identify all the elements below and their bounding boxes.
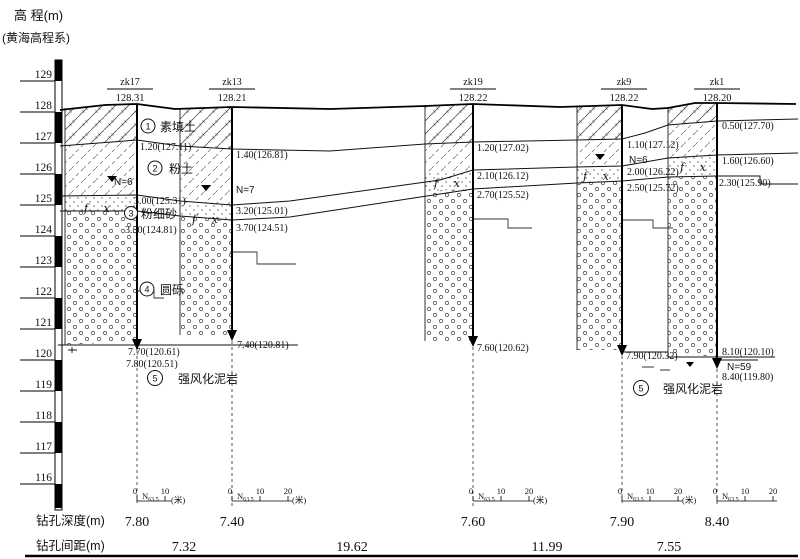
mark-label: 1.60(126.60) bbox=[722, 156, 774, 167]
scale-bar-zk17: 0 10 N63.5 (米) bbox=[133, 486, 185, 505]
scale-unit: (米) bbox=[682, 495, 696, 505]
layer-number: 4 bbox=[144, 285, 149, 295]
footer: 钻孔深度(m) 7.80 7.40 7.60 7.90 8.40 钻孔间距(m)… bbox=[25, 513, 798, 556]
mark-label: 1.40(126.81) bbox=[236, 150, 288, 161]
elevation-ruler: 129 128 127 126 125 124 123 122 121 120 … bbox=[20, 60, 62, 510]
layer5-label-left: 5 强风化泥岩 bbox=[148, 371, 239, 387]
scale-unit: (米) bbox=[533, 495, 547, 505]
mark-label: 3.00(125.31) bbox=[134, 196, 186, 207]
mark-label: 8.40(119.80) bbox=[722, 372, 773, 383]
scale-tick-20: 20 bbox=[525, 486, 534, 496]
layer-name: 粉细砂 bbox=[141, 207, 177, 221]
fx-symbol: f x bbox=[679, 161, 712, 174]
svg-text:116: 116 bbox=[35, 472, 52, 484]
svg-text:120: 120 bbox=[35, 348, 53, 360]
mark-label: 7.40(120.81) bbox=[237, 340, 289, 351]
scale-tick-10: 10 bbox=[497, 486, 506, 496]
spacing-value: 11.99 bbox=[532, 540, 563, 555]
svg-text:124: 124 bbox=[35, 224, 53, 236]
sample-step-zk13 bbox=[230, 252, 296, 264]
zk17-layer1-fill bbox=[65, 104, 137, 146]
mark-label: 7.80(120.51) bbox=[126, 359, 178, 370]
scale-tick-10: 10 bbox=[646, 486, 655, 496]
svg-text:118: 118 bbox=[35, 410, 52, 422]
layer-name: 强风化泥岩 bbox=[178, 371, 238, 386]
layer-number: 5 bbox=[152, 374, 157, 384]
layer-number: 1 bbox=[145, 122, 150, 132]
scale-tick-0: 0 bbox=[618, 486, 622, 496]
scale-bar-zk19: 0 10 20 N63.5 (米) bbox=[469, 486, 547, 505]
borehole-name: zk13 bbox=[222, 77, 241, 88]
borehole-name: zk17 bbox=[120, 77, 139, 88]
borehole-top-elevation: 128.21 bbox=[218, 93, 247, 104]
mark-label: 1.20(127.02) bbox=[477, 143, 529, 154]
borehole-bottom-arrow bbox=[712, 358, 722, 369]
fx-symbol: f x bbox=[83, 202, 116, 215]
borehole-name: zk19 bbox=[463, 77, 482, 88]
borehole-name: zk1 bbox=[710, 77, 724, 88]
spt-value: N=59 bbox=[727, 362, 752, 373]
spt-value: N=7 bbox=[236, 185, 255, 196]
scale-bar-zk13: 0 10 20 N63.5 (米) bbox=[228, 486, 306, 505]
fx-symbol: f x bbox=[191, 213, 224, 226]
layer2-label: 2 粉土 bbox=[148, 161, 193, 176]
sample-step-zk19 bbox=[473, 219, 532, 228]
svg-text:125: 125 bbox=[35, 193, 53, 205]
mark-label: 8.10(120.10) bbox=[722, 347, 774, 358]
geological-cross-section: 高 程(m) (黄海高程系) 129 128 127 126 125 124 1… bbox=[0, 0, 800, 559]
scale-unit: (米) bbox=[292, 495, 306, 505]
cross-section-drawing: 高 程(m) (黄海高程系) 129 128 127 126 125 124 1… bbox=[0, 0, 800, 559]
layer5-label-right: 5 强风化泥岩 bbox=[634, 381, 724, 397]
axis-subtitle: (黄海高程系) bbox=[2, 30, 70, 45]
depth-value: 7.90 bbox=[610, 515, 635, 530]
zk19-layer4-fill bbox=[425, 189, 473, 341]
layer1-label: 1 素填土 bbox=[141, 119, 196, 134]
mark-label: 7.90(120.32) bbox=[626, 351, 678, 362]
layer-number: 2 bbox=[152, 164, 157, 174]
mark-label: 2.00(126.22) bbox=[627, 167, 679, 178]
svg-text:128: 128 bbox=[35, 100, 53, 112]
scale-bar-zk1: 0 10 20 N63.5 bbox=[713, 486, 777, 503]
svg-text:127: 127 bbox=[35, 131, 53, 143]
layer-name: 粉土 bbox=[169, 162, 193, 176]
spt-value: N=6 bbox=[114, 177, 133, 188]
weathered-rock-tick bbox=[68, 347, 77, 353]
mark-label: 3.20(125.01) bbox=[236, 206, 288, 217]
mark-label: 3.50(124.81) bbox=[125, 225, 177, 236]
spacing-value: 7.32 bbox=[172, 540, 197, 555]
mark-label: 3.70(124.51) bbox=[236, 223, 288, 234]
mark-label: 2.70(125.52) bbox=[477, 190, 529, 201]
scale-tick-20: 20 bbox=[769, 486, 778, 496]
spacing-value: 19.62 bbox=[336, 540, 368, 555]
svg-text:123: 123 bbox=[35, 255, 53, 267]
spacing-row-label: 钻孔间距(m) bbox=[36, 538, 105, 553]
sample-step-zk9 bbox=[622, 220, 673, 228]
scale-tick-10: 10 bbox=[741, 486, 750, 496]
zk13-layer4-fill bbox=[180, 216, 232, 335]
depth-value: 7.80 bbox=[125, 515, 150, 530]
fx-symbol: f x bbox=[433, 177, 466, 190]
depth-value: 7.60 bbox=[461, 515, 486, 530]
scale-unit: (米) bbox=[171, 495, 185, 505]
axis-title: 高 程(m) bbox=[14, 8, 63, 23]
svg-text:119: 119 bbox=[35, 379, 52, 391]
scale-tick-0: 0 bbox=[228, 486, 232, 496]
water-table-icon bbox=[686, 362, 694, 367]
borehole-name: zk9 bbox=[617, 77, 631, 88]
borehole-top-elevation: 128.22 bbox=[610, 93, 639, 104]
zk9-layer2-fill bbox=[577, 139, 622, 167]
mark-label: 1.20(127.11) bbox=[140, 142, 191, 153]
scale-tick-20: 20 bbox=[284, 486, 293, 496]
fx-symbol: f x bbox=[582, 170, 615, 183]
scale-tick-10: 10 bbox=[161, 486, 170, 496]
layer-name: 圆砾 bbox=[160, 283, 184, 297]
mark-label: 7.70(120.61) bbox=[128, 347, 180, 358]
borehole-top-elevation: 128.22 bbox=[459, 93, 488, 104]
mark-label: 2.10(126.12) bbox=[477, 171, 529, 182]
spt-value: N=6 bbox=[629, 155, 648, 166]
mark-label: 1.10(127.12) bbox=[627, 140, 679, 151]
scale-tick-0: 0 bbox=[713, 486, 717, 496]
mark-label: 2.30(125.90) bbox=[719, 178, 771, 189]
mark-label: 2.50(125.72) bbox=[627, 183, 679, 194]
zk19-layer1-fill bbox=[425, 104, 473, 144]
svg-text:129: 129 bbox=[35, 69, 53, 81]
scale-bar-zk9: 0 10 20 N63.5 (米) bbox=[618, 486, 696, 505]
svg-text:121: 121 bbox=[35, 317, 53, 329]
layer3-label: 3 粉细砂 bbox=[125, 207, 178, 222]
ruler-tick-labels: 129 128 127 126 125 124 123 122 121 120 … bbox=[35, 69, 53, 484]
borehole-bottom-arrow bbox=[227, 330, 237, 341]
scale-tick-20: 20 bbox=[674, 486, 683, 496]
svg-text:122: 122 bbox=[35, 286, 53, 298]
mark-label: 7.60(120.62) bbox=[477, 343, 529, 354]
borehole-top-elevation: 128.20 bbox=[703, 93, 732, 104]
mark-label: 0.50(127.70) bbox=[722, 121, 774, 132]
layer-name: 强风化泥岩 bbox=[663, 381, 723, 396]
layer-name: 素填土 bbox=[160, 120, 196, 134]
zk19-layer2-fill bbox=[425, 142, 473, 172]
borehole-top-elevation: 128.31 bbox=[116, 93, 145, 104]
svg-text:117: 117 bbox=[35, 441, 52, 453]
depth-value: 8.40 bbox=[705, 515, 730, 530]
scale-tick-10: 10 bbox=[256, 486, 265, 496]
scale-tick-0: 0 bbox=[133, 486, 137, 496]
depth-row-label: 钻孔深度(m) bbox=[36, 513, 105, 528]
depth-value: 7.40 bbox=[220, 515, 245, 530]
layer-number: 3 bbox=[128, 209, 133, 219]
zk1-layer4-fill bbox=[668, 176, 717, 357]
penetration-scale-bars: 0 10 N63.5 (米) 0 10 20 N63.5 (米) 0 10 20… bbox=[133, 486, 777, 505]
spacing-value: 7.55 bbox=[657, 540, 682, 555]
zk9-layer1-fill bbox=[577, 105, 622, 140]
mudstone-dashes bbox=[642, 367, 670, 370]
zk9-layer4-fill bbox=[577, 181, 622, 350]
scale-tick-0: 0 bbox=[469, 486, 473, 496]
svg-text:126: 126 bbox=[35, 162, 53, 174]
layer4-label: 4 圆砾 bbox=[140, 282, 184, 297]
layer-number: 5 bbox=[638, 384, 643, 394]
